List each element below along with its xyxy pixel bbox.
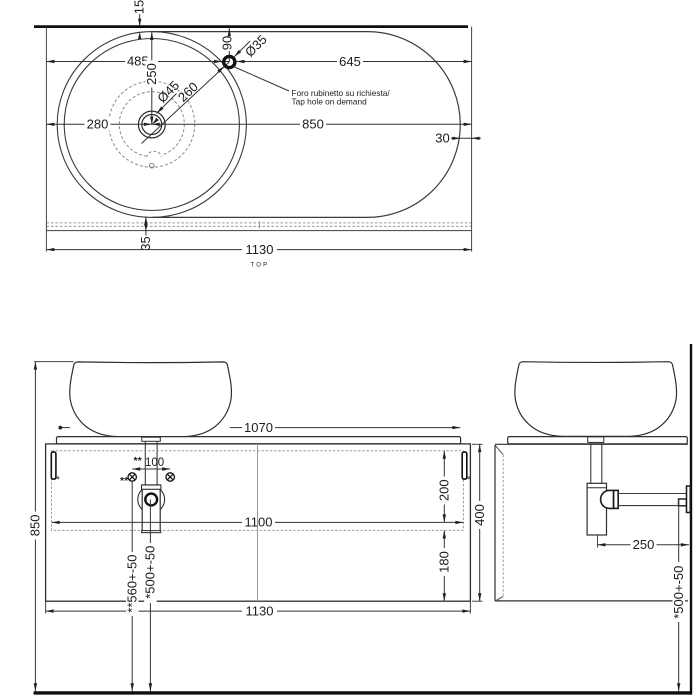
svg-text:280: 280 bbox=[87, 117, 109, 132]
svg-text:*500+-50: *500+-50 bbox=[143, 546, 158, 599]
svg-text:250: 250 bbox=[144, 63, 159, 85]
svg-text:400: 400 bbox=[472, 504, 487, 526]
svg-text:180: 180 bbox=[436, 551, 451, 573]
svg-text:TOP: TOP bbox=[251, 263, 270, 269]
svg-text:90: 90 bbox=[220, 36, 235, 50]
svg-text:1070: 1070 bbox=[244, 420, 273, 435]
svg-text:1130: 1130 bbox=[246, 242, 274, 257]
svg-text:1130: 1130 bbox=[246, 603, 274, 618]
svg-text:200: 200 bbox=[436, 479, 451, 501]
svg-text:850: 850 bbox=[302, 117, 324, 132]
svg-text:**560+-50: **560+-50 bbox=[124, 554, 139, 612]
svg-text:100: 100 bbox=[145, 457, 164, 469]
svg-text:15: 15 bbox=[132, 0, 147, 14]
svg-text:30: 30 bbox=[435, 131, 449, 146]
svg-text:1100: 1100 bbox=[245, 515, 273, 530]
svg-text:35: 35 bbox=[138, 236, 153, 250]
svg-text:Tap hole on demand: Tap hole on demand bbox=[292, 96, 368, 106]
svg-text:*500+-50: *500+-50 bbox=[671, 566, 686, 619]
svg-text:645: 645 bbox=[339, 54, 361, 69]
svg-text:**: ** bbox=[120, 475, 129, 487]
svg-text:250: 250 bbox=[633, 537, 655, 552]
svg-text:**: ** bbox=[134, 455, 143, 467]
svg-text:850: 850 bbox=[28, 515, 43, 537]
